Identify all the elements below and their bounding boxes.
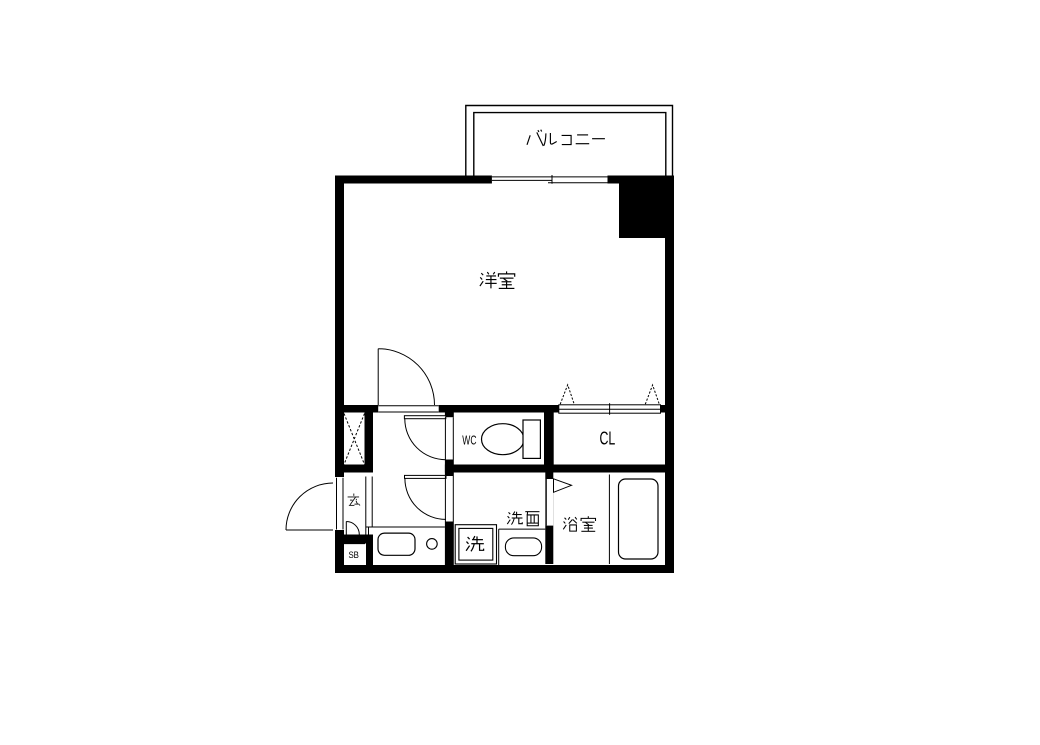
svg-text:SB: SB (348, 550, 359, 561)
svg-text:WC: WC (462, 433, 476, 448)
svg-text:CL: CL (600, 429, 616, 449)
